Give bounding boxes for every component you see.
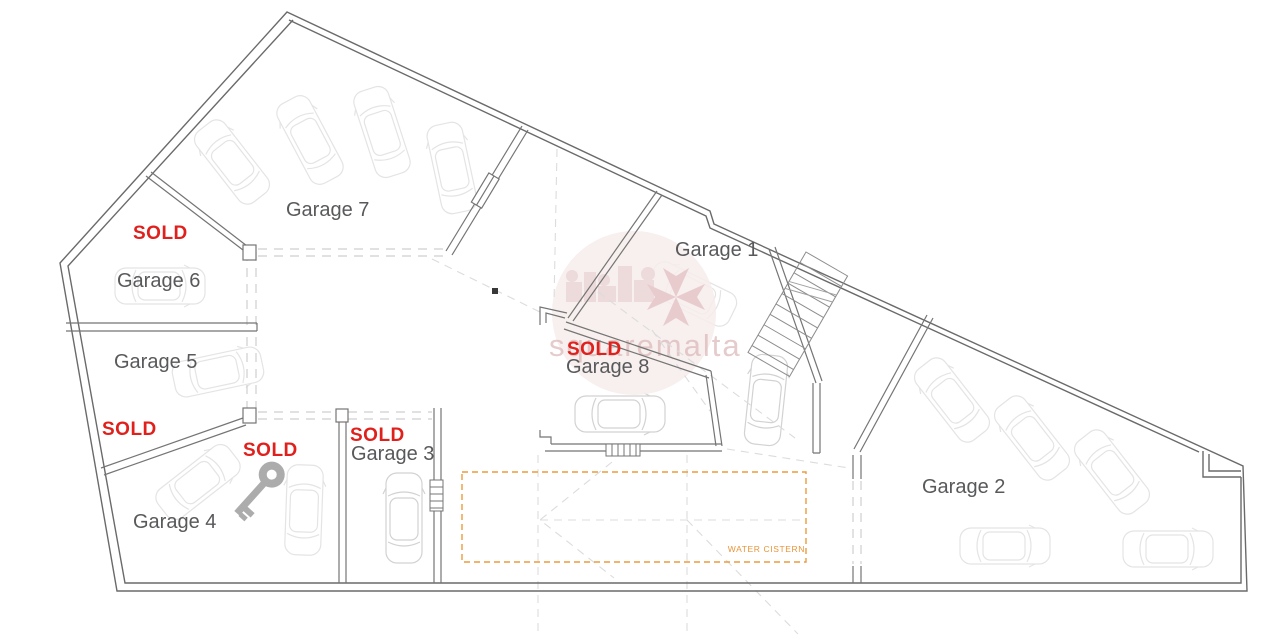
garage-floor-plan: squaremalta	[0, 0, 1268, 638]
car-outline-icon	[960, 525, 1050, 567]
car-outline-icon	[383, 473, 425, 563]
car-outline-icon	[575, 393, 665, 435]
column-marker	[492, 288, 498, 294]
car-outline-icon	[740, 353, 791, 447]
car-outline-icon	[988, 390, 1077, 487]
staircase	[748, 252, 848, 376]
garage-1-label: Garage 1	[675, 239, 758, 262]
key-icon	[227, 456, 290, 522]
car-outline-icon	[1068, 424, 1157, 521]
car-outline-icon	[281, 464, 326, 555]
car-outlines-dark	[383, 353, 792, 563]
garage-5-sold-badge: SOLD	[102, 419, 157, 441]
garage-2-label: Garage 2	[922, 476, 1005, 499]
garage-8-sold-badge: SOLD	[567, 339, 622, 361]
car-outline-icon	[348, 83, 416, 182]
garage-4-sold-badge: SOLD	[243, 440, 298, 462]
car-outline-icon	[188, 114, 277, 211]
garage-6-sold-badge: SOLD	[133, 223, 188, 245]
floor-plan-drawing: squaremalta	[0, 0, 1268, 638]
garage-5-label: Garage 5	[114, 351, 197, 374]
garage-6-label: Garage 6	[117, 270, 200, 293]
garage-3-sold-badge: SOLD	[350, 425, 405, 447]
water-cistern-label: WATER CISTERN	[640, 544, 805, 554]
car-outline-icon	[270, 90, 349, 189]
car-outline-icon	[908, 352, 997, 449]
garage-4-label: Garage 4	[133, 511, 216, 534]
car-outline-icon	[1123, 528, 1213, 570]
garage-7-label: Garage 7	[286, 199, 369, 222]
